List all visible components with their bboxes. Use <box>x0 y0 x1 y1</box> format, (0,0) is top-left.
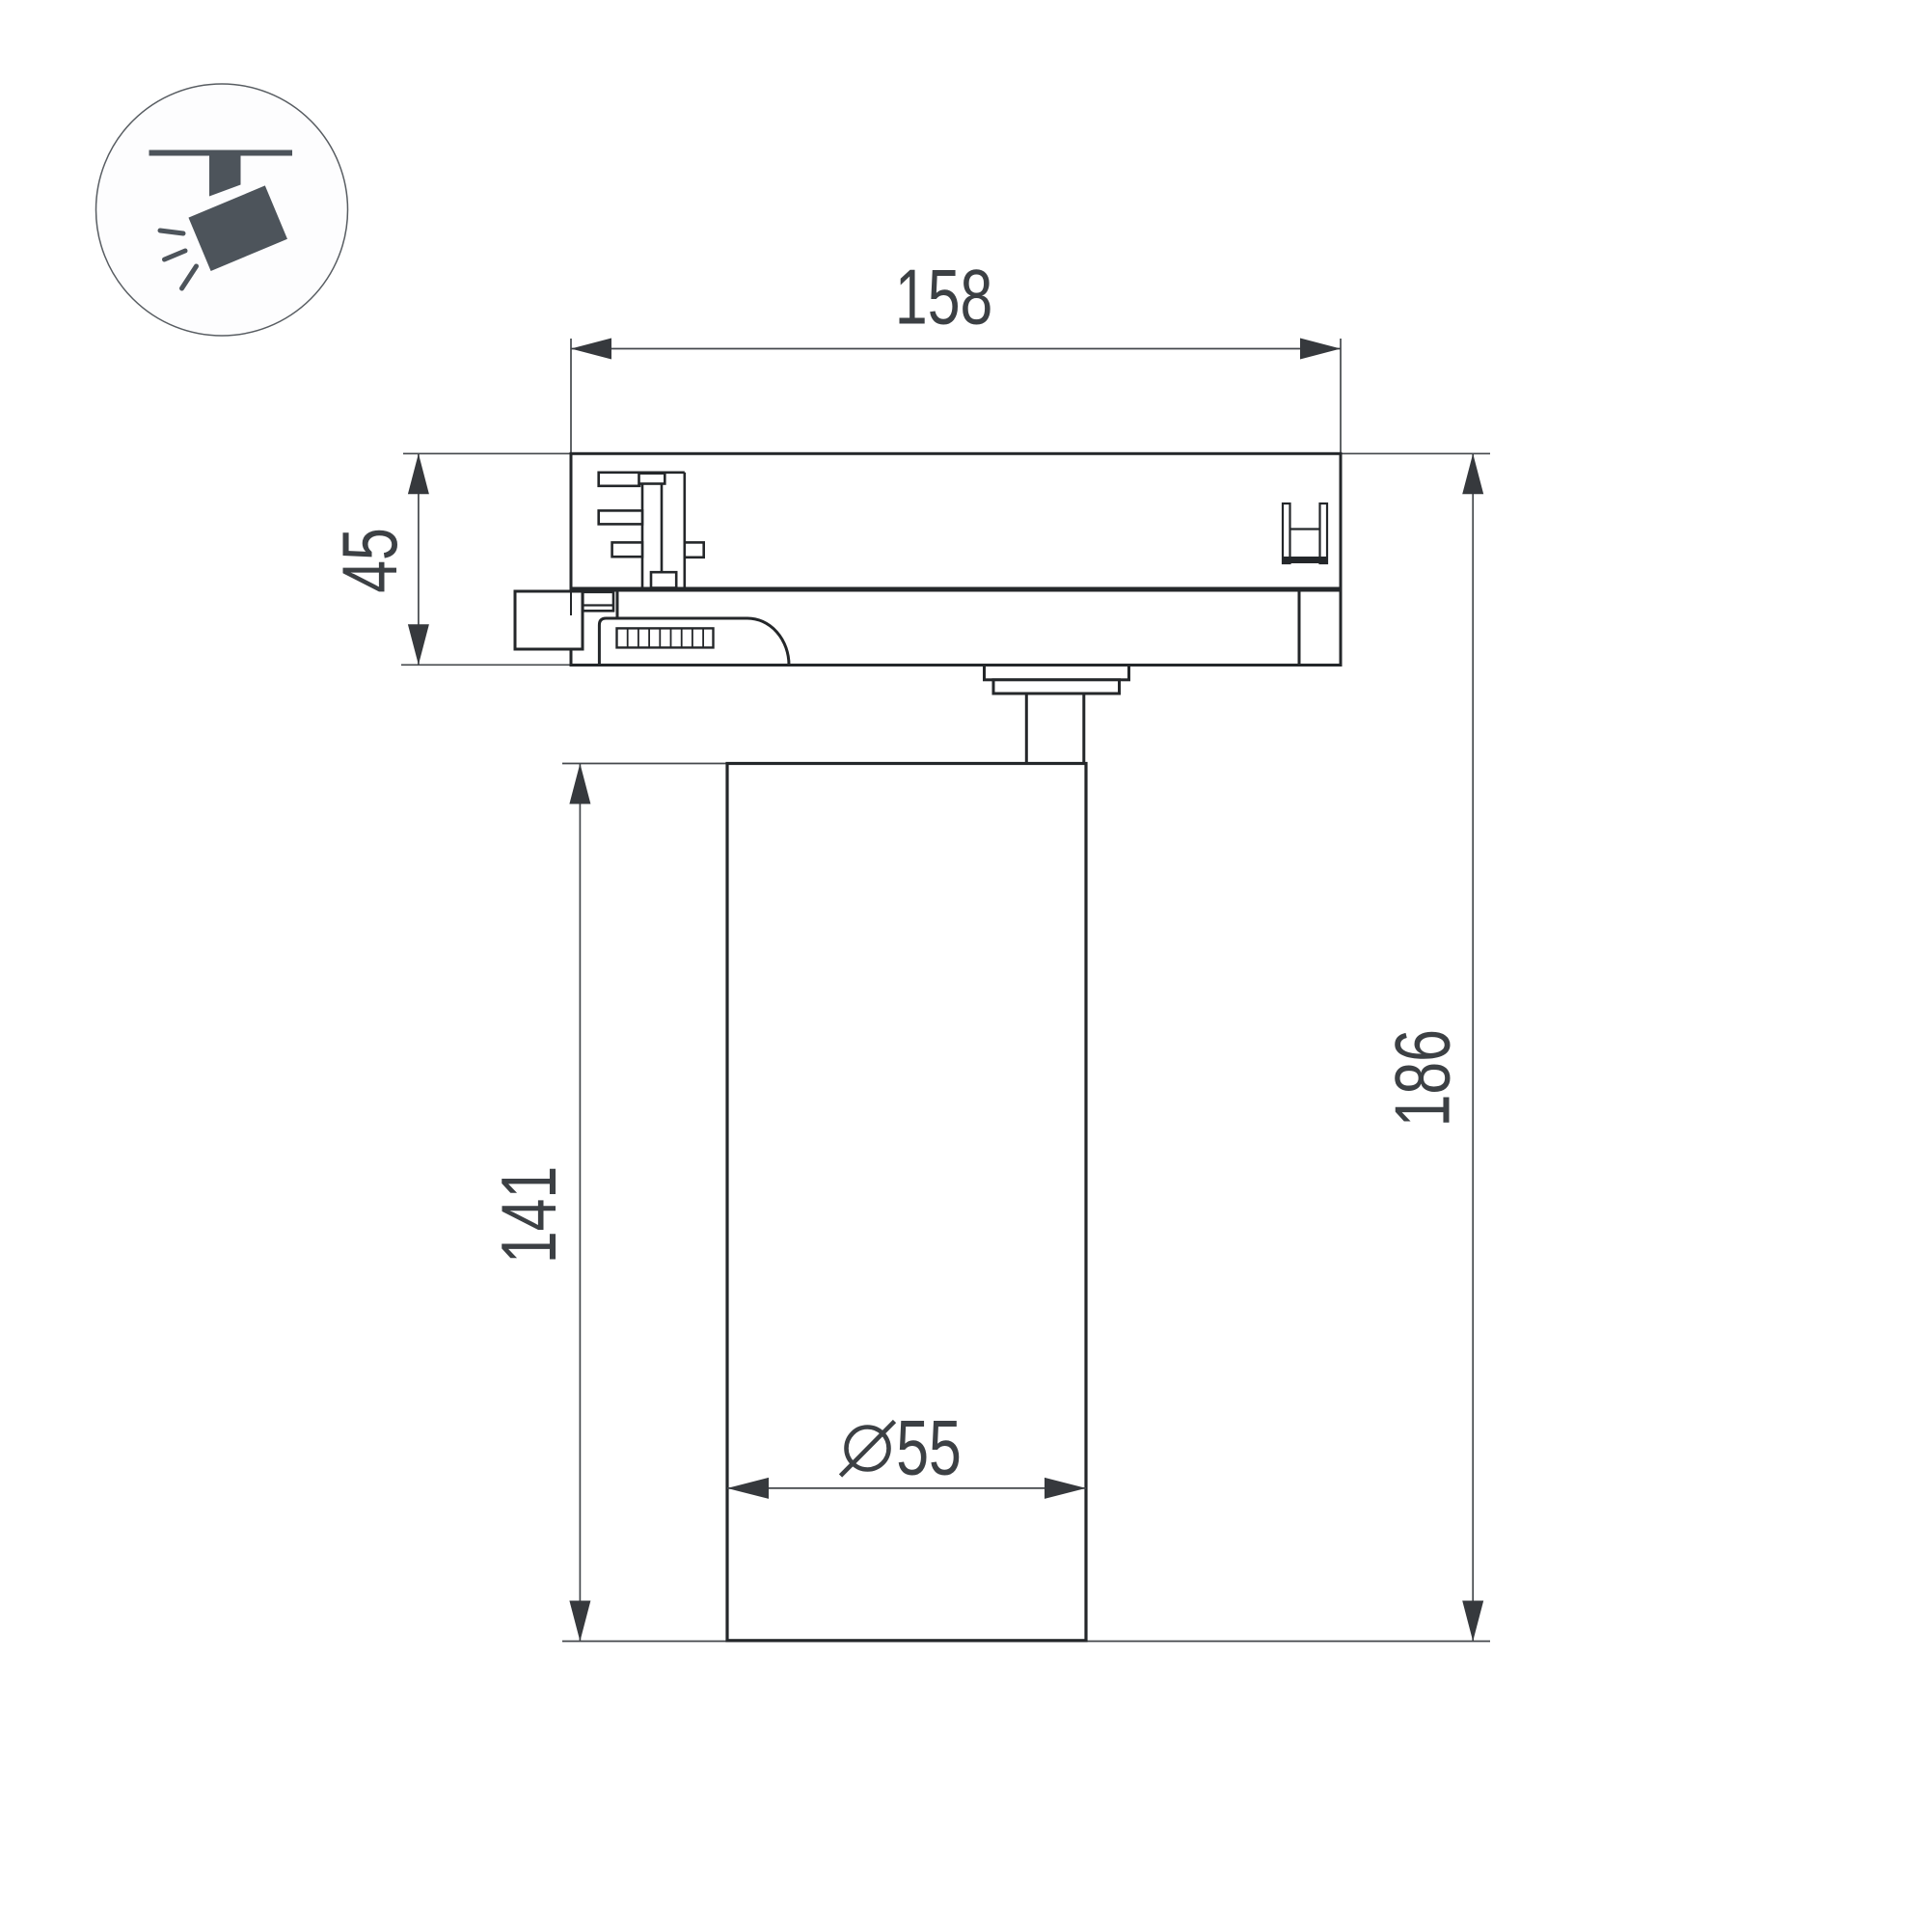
svg-text:55: 55 <box>896 1404 962 1492</box>
svg-text:45: 45 <box>327 528 415 593</box>
svg-text:186: 186 <box>1379 1029 1467 1127</box>
svg-text:158: 158 <box>895 254 992 341</box>
svg-text:141: 141 <box>485 1166 573 1264</box>
